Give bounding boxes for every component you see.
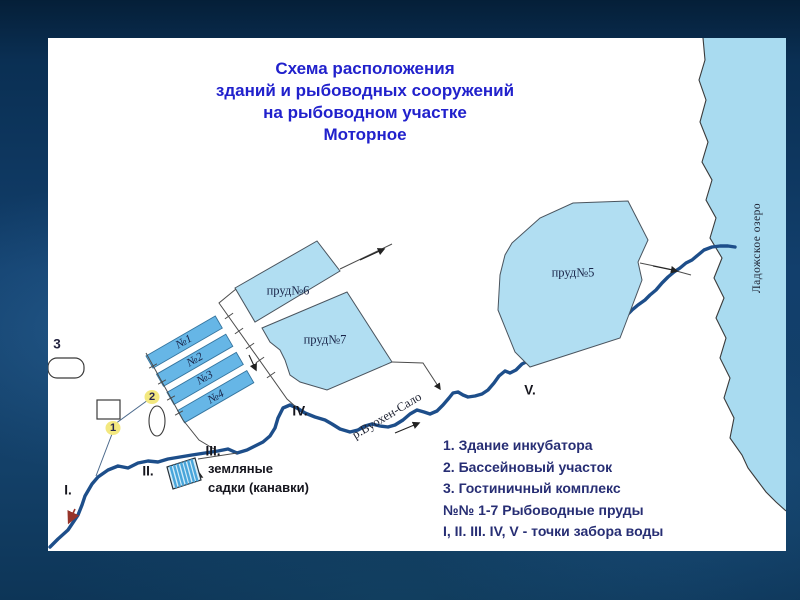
legend-item-ponds: №№ 1-7 Рыбоводные пруды (443, 500, 663, 522)
basin-site-shape (149, 406, 165, 436)
flow-arrow-pond6 (360, 249, 384, 260)
hotel-complex-shape (48, 358, 84, 378)
title-line-2: зданий и рыбоводных сооружений (216, 80, 514, 102)
legend-item-incubator: 1. Здание инкубатора (443, 435, 663, 457)
pond7-outlet-channel (392, 362, 440, 389)
diagram-canvas: Схема расположения зданий и рыбоводных с… (48, 38, 786, 551)
incubator-building-shape (97, 400, 120, 419)
incubator-marker: 1 (106, 421, 121, 435)
pond-5-shape (498, 201, 648, 367)
title-line-4: Моторное (216, 124, 514, 146)
earthen-cages-label-line-1: земляные (208, 459, 309, 478)
legend-item-hotel: 3. Гостиничный комплекс (443, 478, 663, 500)
hotel-marker: 3 (53, 337, 61, 352)
intake-point-5: V. (524, 383, 536, 398)
legend-item-basin: 2. Бассейновый участок (443, 457, 663, 479)
pond6-outlet-channel (340, 244, 392, 269)
legend: 1. Здание инкубатора 2. Бассейновый учас… (443, 435, 663, 543)
flow-arrow-pond5 (653, 266, 677, 271)
earthen-cages-label: земляные садки (канавки) (208, 459, 309, 497)
earthen-cages-shape (167, 458, 201, 489)
intake-point-3: III. (205, 444, 220, 459)
basin-site-marker: 2 (145, 390, 160, 404)
flow-arrow-channel (249, 355, 256, 370)
title-line-3: на рыбоводном участке (216, 102, 514, 124)
intake-point-2: II. (142, 464, 153, 479)
slide-background: Схема расположения зданий и рыбоводных с… (0, 0, 800, 600)
earthen-cages-label-line-2: садки (канавки) (208, 478, 309, 497)
pond-6-label: пруд№6 (267, 284, 310, 299)
lake-ladoga-label: Ладожское озеро (751, 203, 763, 293)
intake-point-4: IV. (292, 404, 307, 419)
lake-ladoga-shape (699, 38, 786, 511)
pond-5-label: пруд№5 (552, 266, 595, 281)
legend-item-intakes: I, II. III. IV, V - точки забора воды (443, 521, 663, 543)
intake-point-1: I. (64, 483, 72, 498)
pond-7-label: пруд№7 (304, 333, 347, 348)
slide-title: Схема расположения зданий и рыбоводных с… (216, 58, 514, 146)
title-line-1: Схема расположения (216, 58, 514, 80)
